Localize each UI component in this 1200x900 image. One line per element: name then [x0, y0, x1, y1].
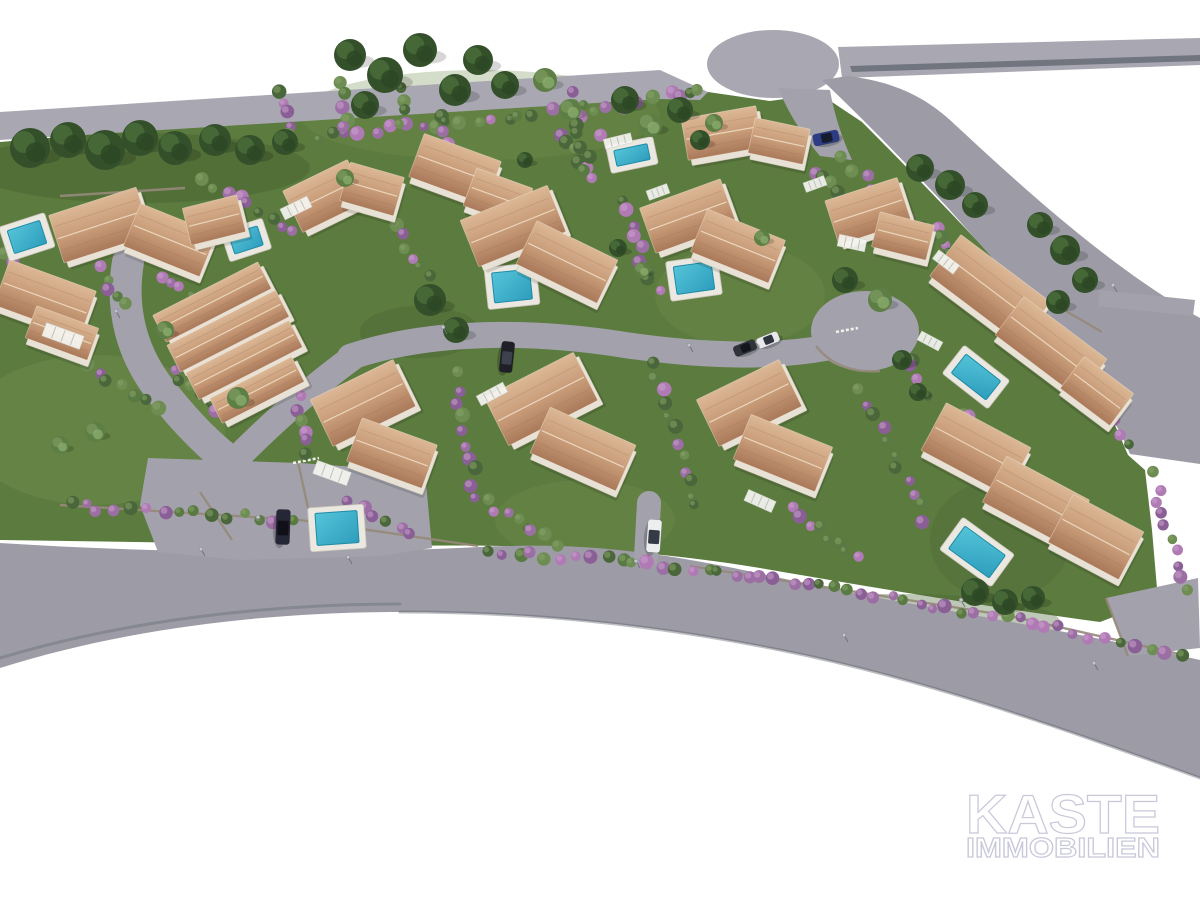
- hedge-shrub-highlight: [471, 494, 476, 499]
- tree-shade: [647, 122, 659, 134]
- hedge-shrub-highlight: [604, 552, 610, 558]
- hedge-shrub-highlight: [686, 475, 692, 481]
- hedge-shrub-highlight: [918, 601, 923, 606]
- hedge-shrub-highlight: [690, 501, 695, 506]
- hedge-shrub-highlight: [68, 497, 75, 504]
- hedge-shrub-highlight: [1083, 635, 1089, 641]
- hedge-shrub-highlight: [456, 409, 463, 416]
- hedge-shrub-highlight: [674, 91, 681, 98]
- hedge-shrub-highlight: [338, 122, 344, 128]
- hedge-shrub-highlight: [1152, 498, 1158, 504]
- tree-shade: [453, 326, 466, 339]
- hedge-shrub-highlight: [969, 608, 975, 614]
- hedge-shrub-highlight: [398, 229, 404, 235]
- hedge-shrub-highlight: [916, 516, 923, 523]
- hedge-shrub-highlight: [863, 402, 868, 407]
- hedge-shrub-highlight: [328, 128, 334, 134]
- hedge-shrub-highlight: [456, 388, 461, 393]
- tree-shade: [523, 158, 531, 166]
- hedge-shrub-highlight: [525, 525, 531, 531]
- hedge-shrub-highlight: [1115, 430, 1121, 436]
- tree-shade: [282, 138, 295, 151]
- hedge-shrub-highlight: [395, 120, 400, 125]
- hedge-shrub-highlight: [667, 87, 674, 94]
- hedge-shrub-highlight: [436, 110, 443, 117]
- tree-shade: [712, 120, 721, 129]
- hedge-shrub-highlight: [660, 398, 667, 405]
- hedge-shrub-highlight: [83, 500, 88, 505]
- hedge-shrub-highlight: [745, 572, 751, 578]
- pool-water: [315, 511, 359, 546]
- hedge-shrub-highlight: [267, 517, 274, 524]
- hedge-shrub-highlight: [109, 506, 115, 512]
- tree-shade: [136, 133, 154, 151]
- car-windshield: [648, 530, 660, 545]
- hedge-shrub-highlight: [842, 585, 848, 591]
- hedge-shrub-highlight: [649, 373, 656, 380]
- hedge-shrub-highlight: [863, 171, 869, 177]
- hedge-shrub-highlight: [595, 130, 601, 136]
- pool: [308, 504, 367, 552]
- tree-shade: [163, 327, 172, 336]
- hedge-shrub-highlight: [575, 142, 582, 149]
- hedge-shrub-highlight: [906, 477, 911, 482]
- tree-shade: [568, 107, 579, 118]
- hedge-shrub-highlight: [578, 165, 584, 171]
- hedge-shrub-highlight: [568, 87, 574, 93]
- hedge-shrub-highlight: [898, 596, 903, 601]
- render-canvas: KASTE IMMOBILIEN: [0, 0, 1200, 900]
- hedge-shrub-highlight: [634, 256, 641, 263]
- hedge-shrub-highlight: [461, 443, 466, 448]
- hedge-shrub-highlight: [957, 609, 962, 614]
- tree-shade: [236, 395, 247, 406]
- hedge-shrub-highlight: [815, 580, 820, 585]
- hedge-shrub-highlight: [516, 549, 523, 556]
- hedge-shrub-highlight: [342, 114, 349, 121]
- lamp-head: [256, 515, 260, 519]
- hedge-shrub-highlight: [174, 376, 180, 382]
- hedge-shrub-highlight: [189, 506, 195, 512]
- hedge-shrub-highlight: [100, 376, 106, 382]
- hedge-shrub-highlight: [830, 581, 836, 587]
- hedge-shrub-highlight: [673, 440, 679, 446]
- hedge-shrub-highlight: [892, 452, 897, 457]
- hedge-shrub-highlight: [1156, 486, 1162, 492]
- hedge-shrub-highlight: [658, 563, 665, 570]
- hedge-shrub-highlight: [579, 101, 584, 106]
- hedge-shrub-highlight: [939, 600, 946, 607]
- tree-shade: [900, 357, 910, 367]
- hedge-shrub-highlight: [91, 507, 97, 513]
- hedge-shrub-highlight: [158, 273, 164, 279]
- hedge-shrub-highlight: [1125, 440, 1130, 445]
- hedge-shrub-highlight: [1129, 640, 1136, 647]
- hedge-shrub-highlight: [556, 555, 562, 561]
- hedge-shrub-highlight: [292, 405, 299, 412]
- hedge-shrub-highlight: [506, 115, 511, 120]
- hedge-shrub-highlight: [373, 129, 379, 135]
- hedge-shrub-highlight: [381, 517, 387, 523]
- tree-shade: [1055, 299, 1067, 311]
- hedge-shrub-highlight: [438, 127, 444, 133]
- lamp-head: [959, 598, 963, 602]
- hedge-shrub-highlight: [526, 111, 532, 117]
- hedge-shrub-highlight: [315, 136, 320, 141]
- hedge-shrub-highlight: [767, 573, 774, 580]
- hedge-shrub-highlight: [484, 495, 490, 501]
- hedge-shrub-highlight: [910, 491, 915, 496]
- hedge-shrub-highlight: [512, 112, 517, 117]
- hedge-shrub-highlight: [400, 105, 406, 111]
- hedge-shrub-highlight: [505, 509, 510, 514]
- hedge-shrub-highlight: [129, 390, 136, 397]
- hedge-shrub-highlight: [664, 413, 669, 418]
- hedge-shrub-highlight: [790, 580, 796, 586]
- tree-shade: [1030, 595, 1042, 607]
- hedge-shrub-highlight: [1017, 613, 1022, 618]
- hedge-shrub-highlight: [278, 223, 283, 228]
- lamp-head: [346, 555, 350, 559]
- hedge-shrub-highlight: [224, 188, 231, 195]
- hedge-shrub-highlight: [102, 284, 109, 291]
- tree-shade: [171, 143, 188, 160]
- tree-shade: [416, 45, 433, 62]
- tree-shade: [622, 96, 636, 110]
- site-plan-rendering: KASTE IMMOBILIEN: [0, 0, 1200, 900]
- watermark: KASTE IMMOBILIEN: [966, 783, 1160, 863]
- tree-shade: [211, 136, 227, 152]
- hedge-shrub-highlight: [1159, 647, 1166, 654]
- hedge-shrub-highlight: [222, 514, 228, 520]
- hedge-shrub-highlight: [916, 498, 923, 505]
- hedge-shrub-highlight: [879, 422, 886, 429]
- hedge-shrub-highlight: [835, 538, 842, 545]
- hedge-shrub-highlight: [525, 547, 531, 553]
- hedge-shrub-highlight: [1174, 562, 1179, 567]
- hedge-shrub-highlight: [254, 208, 259, 213]
- hedge-shrub-highlight: [161, 507, 168, 514]
- hedge-shrub-highlight: [868, 593, 874, 599]
- hedge-shrub-highlight: [430, 121, 437, 128]
- hedge-shrub-highlight: [823, 536, 828, 541]
- hedge-shrub-highlight: [385, 120, 392, 127]
- hedge-shrub-highlight: [553, 541, 559, 547]
- hedge-shrub-highlight: [627, 559, 632, 564]
- hedge-shrub-highlight: [465, 480, 472, 487]
- tree-shade: [475, 56, 490, 71]
- hedge-shrub-highlight: [882, 437, 887, 442]
- hedge-shrub-highlight: [142, 395, 148, 401]
- hedge-shrub-highlight: [689, 567, 694, 572]
- hedge-shrub-highlight: [539, 529, 546, 536]
- hedge-shrub-highlight: [692, 85, 698, 91]
- hedge-shrub-highlight: [415, 263, 420, 268]
- hedge-shrub-highlight: [929, 605, 934, 610]
- hedge-shrub-highlight: [1027, 619, 1033, 625]
- hedge-shrub-highlight: [556, 130, 563, 137]
- tree-shade: [346, 51, 362, 67]
- tree-shade: [101, 144, 121, 164]
- hedge-shrub-highlight: [241, 509, 246, 514]
- hedge-shrub-highlight: [853, 384, 859, 390]
- hedge-shrub-highlight: [97, 369, 102, 374]
- hedge-shrub-highlight: [300, 449, 306, 455]
- watermark-line2: IMMOBILIEN: [966, 832, 1160, 863]
- hedge-shrub-highlight: [153, 402, 160, 409]
- hedge-shrub-highlight: [174, 282, 179, 287]
- hedge-shrub-highlight: [490, 508, 495, 513]
- hedge-shrub-highlight: [464, 453, 471, 460]
- hedge-shrub-highlight: [890, 462, 896, 468]
- lamp-head: [1111, 283, 1115, 287]
- hedge-shrub-highlight: [590, 107, 595, 112]
- tree-shade: [362, 101, 376, 115]
- hedge-shrub-highlight: [584, 151, 591, 158]
- hedge-shrub-highlight: [1100, 633, 1106, 639]
- hedge-shrub-highlight: [538, 554, 545, 561]
- car-windshield: [501, 351, 512, 365]
- hedge-shrub-highlight: [560, 136, 567, 143]
- hedge-shrub-highlight: [1169, 535, 1174, 540]
- tree-shade: [972, 588, 986, 602]
- hedge-shrub-highlight: [118, 380, 124, 386]
- hedge-shrub-highlight: [637, 241, 644, 248]
- hedge-shrub-highlight: [657, 287, 662, 292]
- hedge-shrub-highlight: [548, 103, 555, 110]
- hedge-shrub-highlight: [171, 366, 176, 371]
- tree-shade: [640, 268, 648, 276]
- hedge-shrub-highlight: [857, 590, 863, 596]
- hedge-shrub-highlight: [648, 358, 654, 364]
- hedge-shrub-highlight: [1159, 520, 1165, 526]
- tree-shade: [26, 142, 46, 162]
- hedge-shrub-highlight: [351, 128, 358, 135]
- hedge-shrub-highlight: [167, 279, 172, 284]
- hedge-shrub-highlight: [836, 152, 842, 158]
- hedge-shrub-highlight: [620, 204, 627, 211]
- tree-shade: [451, 86, 467, 102]
- hedge-shrub-highlight: [867, 408, 874, 415]
- hedge-shrub-highlight: [647, 91, 654, 98]
- tree-shade: [343, 175, 352, 184]
- hedge-shrub-highlight: [912, 374, 918, 380]
- hedge-shrub-highlight: [1177, 650, 1183, 656]
- hedge-shrub-highlight: [688, 493, 693, 498]
- tree-shade: [698, 137, 708, 147]
- hedge-shrub-highlight: [280, 100, 285, 105]
- hedge-shrub-highlight: [269, 214, 275, 220]
- hedge-shrub-highlight: [301, 435, 307, 441]
- hedge-shrub-highlight: [498, 551, 503, 556]
- hedge-shrub-highlight: [841, 547, 846, 552]
- hedge-shrub-highlight: [1173, 546, 1178, 551]
- tree-shade: [842, 276, 855, 289]
- lamp-head: [199, 547, 203, 551]
- hedge-shrub-highlight: [125, 502, 132, 509]
- hedge-shrub-highlight: [854, 552, 859, 557]
- hedge-shrub-highlight: [807, 522, 812, 527]
- hedge-shrub-highlight: [120, 298, 126, 304]
- hedge-shrub-highlight: [453, 117, 460, 124]
- hedge-shrub-highlight: [681, 468, 686, 473]
- hedge-shrub-highlight: [706, 565, 712, 571]
- hedge-shrub-highlight: [476, 118, 481, 123]
- hedge-shrub-highlight: [409, 255, 414, 260]
- hedge-shrub-highlight: [754, 571, 760, 577]
- tree-shade: [616, 245, 625, 254]
- hedge-shrub-highlight: [196, 174, 203, 181]
- tree-shade: [917, 164, 931, 178]
- hedge-shrub-highlight: [733, 572, 738, 577]
- hedge-shrub-highlight: [487, 116, 492, 121]
- hedge-shrub-highlight: [686, 89, 691, 94]
- hedge-shrub-highlight: [105, 276, 110, 281]
- hedge-shrub-highlight: [669, 564, 676, 571]
- hedge-shrub-highlight: [286, 123, 291, 128]
- hedge-shrub-highlight: [571, 128, 577, 134]
- tree-shade: [1082, 276, 1095, 289]
- hedge-shrub-highlight: [297, 416, 303, 422]
- hedge-shrub-highlight: [825, 177, 831, 183]
- lamp-head: [687, 343, 691, 347]
- hedge-shrub-highlight: [399, 96, 406, 103]
- tree-shade: [947, 181, 962, 196]
- tree-shade: [64, 135, 82, 153]
- hedge-shrub-highlight: [1148, 467, 1154, 473]
- tree-shade: [247, 146, 262, 161]
- hedge-shrub-highlight: [420, 123, 425, 128]
- hedge-shrub-highlight: [367, 511, 373, 517]
- hedge-shrub-highlight: [469, 462, 476, 469]
- hedge-shrub-highlight: [658, 383, 665, 390]
- hedge-shrub-highlight: [630, 222, 635, 227]
- hedge-shrub-highlight: [142, 504, 147, 509]
- hedge-shrub-highlight: [288, 227, 293, 232]
- hedge-shrub-highlight: [484, 547, 490, 553]
- hedge-shrub-highlight: [618, 197, 623, 202]
- hedge-shrub-highlight: [585, 551, 592, 558]
- hedge-shrub-highlight: [282, 106, 289, 113]
- hedge-shrub-highlight: [96, 261, 102, 267]
- hedge-shrub-highlight: [1175, 571, 1182, 578]
- hedge-shrub-highlight: [300, 427, 307, 434]
- tree-shade: [677, 106, 690, 119]
- hedge-shrub-highlight: [209, 185, 214, 190]
- hedge-shrub-highlight: [113, 292, 118, 297]
- hedge-shrub-highlight: [628, 230, 635, 237]
- tree-shade: [381, 70, 399, 88]
- tree-shade: [972, 201, 985, 214]
- tree-shade: [502, 81, 516, 95]
- tree-shade: [1037, 221, 1050, 234]
- hedge-shrub-highlight: [337, 102, 344, 109]
- hedge-shrub-highlight: [206, 510, 213, 517]
- road-surface: [707, 30, 839, 98]
- hedge-shrub-highlight: [804, 579, 810, 585]
- hedge-shrub-highlight: [335, 77, 342, 84]
- lamp-head: [842, 633, 846, 637]
- hedge-shrub-highlight: [815, 521, 822, 528]
- hedge-shrub-highlight: [441, 117, 446, 122]
- hedge-shrub-highlight: [405, 529, 411, 535]
- hedge-shrub-highlight: [846, 166, 853, 173]
- hedge-shrub-highlight: [794, 511, 801, 518]
- hedge-shrub-highlight: [400, 244, 405, 249]
- hedge-shrub-highlight: [588, 174, 593, 179]
- hedge-shrub-highlight: [1117, 639, 1122, 644]
- hedge-shrub-highlight: [1038, 622, 1044, 628]
- lamp-head: [634, 559, 638, 563]
- hedge-shrub-highlight: [515, 514, 520, 519]
- tree-shade: [542, 77, 554, 89]
- hedge-shrub-highlight: [670, 420, 677, 427]
- tree-shade: [916, 389, 925, 398]
- hedge-shrub-highlight: [175, 508, 180, 513]
- hedge-shrub-highlight: [273, 86, 280, 93]
- tree-shade: [93, 429, 103, 439]
- lamp-head: [114, 309, 118, 313]
- tree-shade: [1062, 246, 1077, 261]
- hedge-shrub-highlight: [1053, 621, 1059, 627]
- hedge-shrub-highlight: [601, 102, 607, 108]
- hedge-shrub-highlight: [810, 168, 817, 175]
- tree-shade: [1002, 598, 1015, 611]
- hedge-shrub-highlight: [572, 156, 579, 163]
- hedge-shrub-highlight: [451, 399, 457, 405]
- tree-shade: [760, 236, 768, 244]
- hedge-shrub-highlight: [1068, 630, 1073, 635]
- lamp-head: [441, 325, 445, 329]
- hedge-shrub-highlight: [681, 451, 686, 456]
- hedge-shrub-highlight: [1183, 585, 1189, 591]
- hedge-shrub-highlight: [343, 497, 348, 502]
- lamp-head: [1092, 661, 1096, 665]
- tree-shade: [58, 442, 67, 451]
- hedge-shrub-highlight: [242, 198, 247, 203]
- hedge-shrub-highlight: [1148, 645, 1154, 651]
- hedge-shrub-highlight: [641, 556, 648, 563]
- hedge-shrub-highlight: [398, 524, 404, 530]
- hedge-shrub-highlight: [988, 612, 993, 617]
- tree-shade: [426, 296, 442, 312]
- hedge-shrub-highlight: [832, 186, 839, 193]
- tree-shade: [877, 297, 889, 309]
- hedge-shrub-highlight: [453, 367, 458, 372]
- hedge-shrub-highlight: [426, 271, 432, 277]
- hedge-shrub-highlight: [572, 552, 577, 557]
- hedge-shrub-highlight: [789, 503, 794, 508]
- hedge-shrub-highlight: [890, 592, 895, 597]
- hedge-shrub-highlight: [712, 567, 717, 572]
- hedge-shrub-highlight: [619, 555, 626, 562]
- car-windshield: [277, 521, 289, 536]
- hedge-shrub-highlight: [457, 426, 462, 431]
- hedge-shrub-highlight: [1157, 508, 1163, 514]
- hedge-shrub-highlight: [340, 88, 346, 94]
